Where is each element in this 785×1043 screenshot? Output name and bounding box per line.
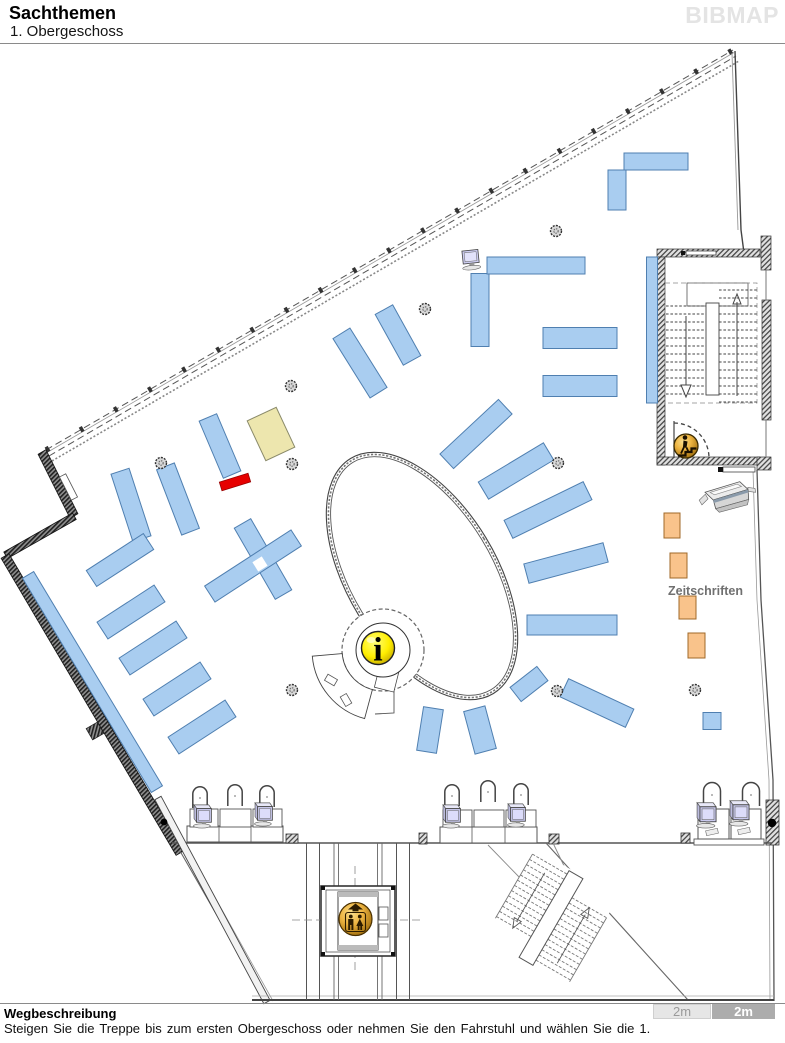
svg-text:i: i — [373, 632, 382, 669]
svg-text:Zeitschriften: Zeitschriften — [668, 584, 743, 598]
